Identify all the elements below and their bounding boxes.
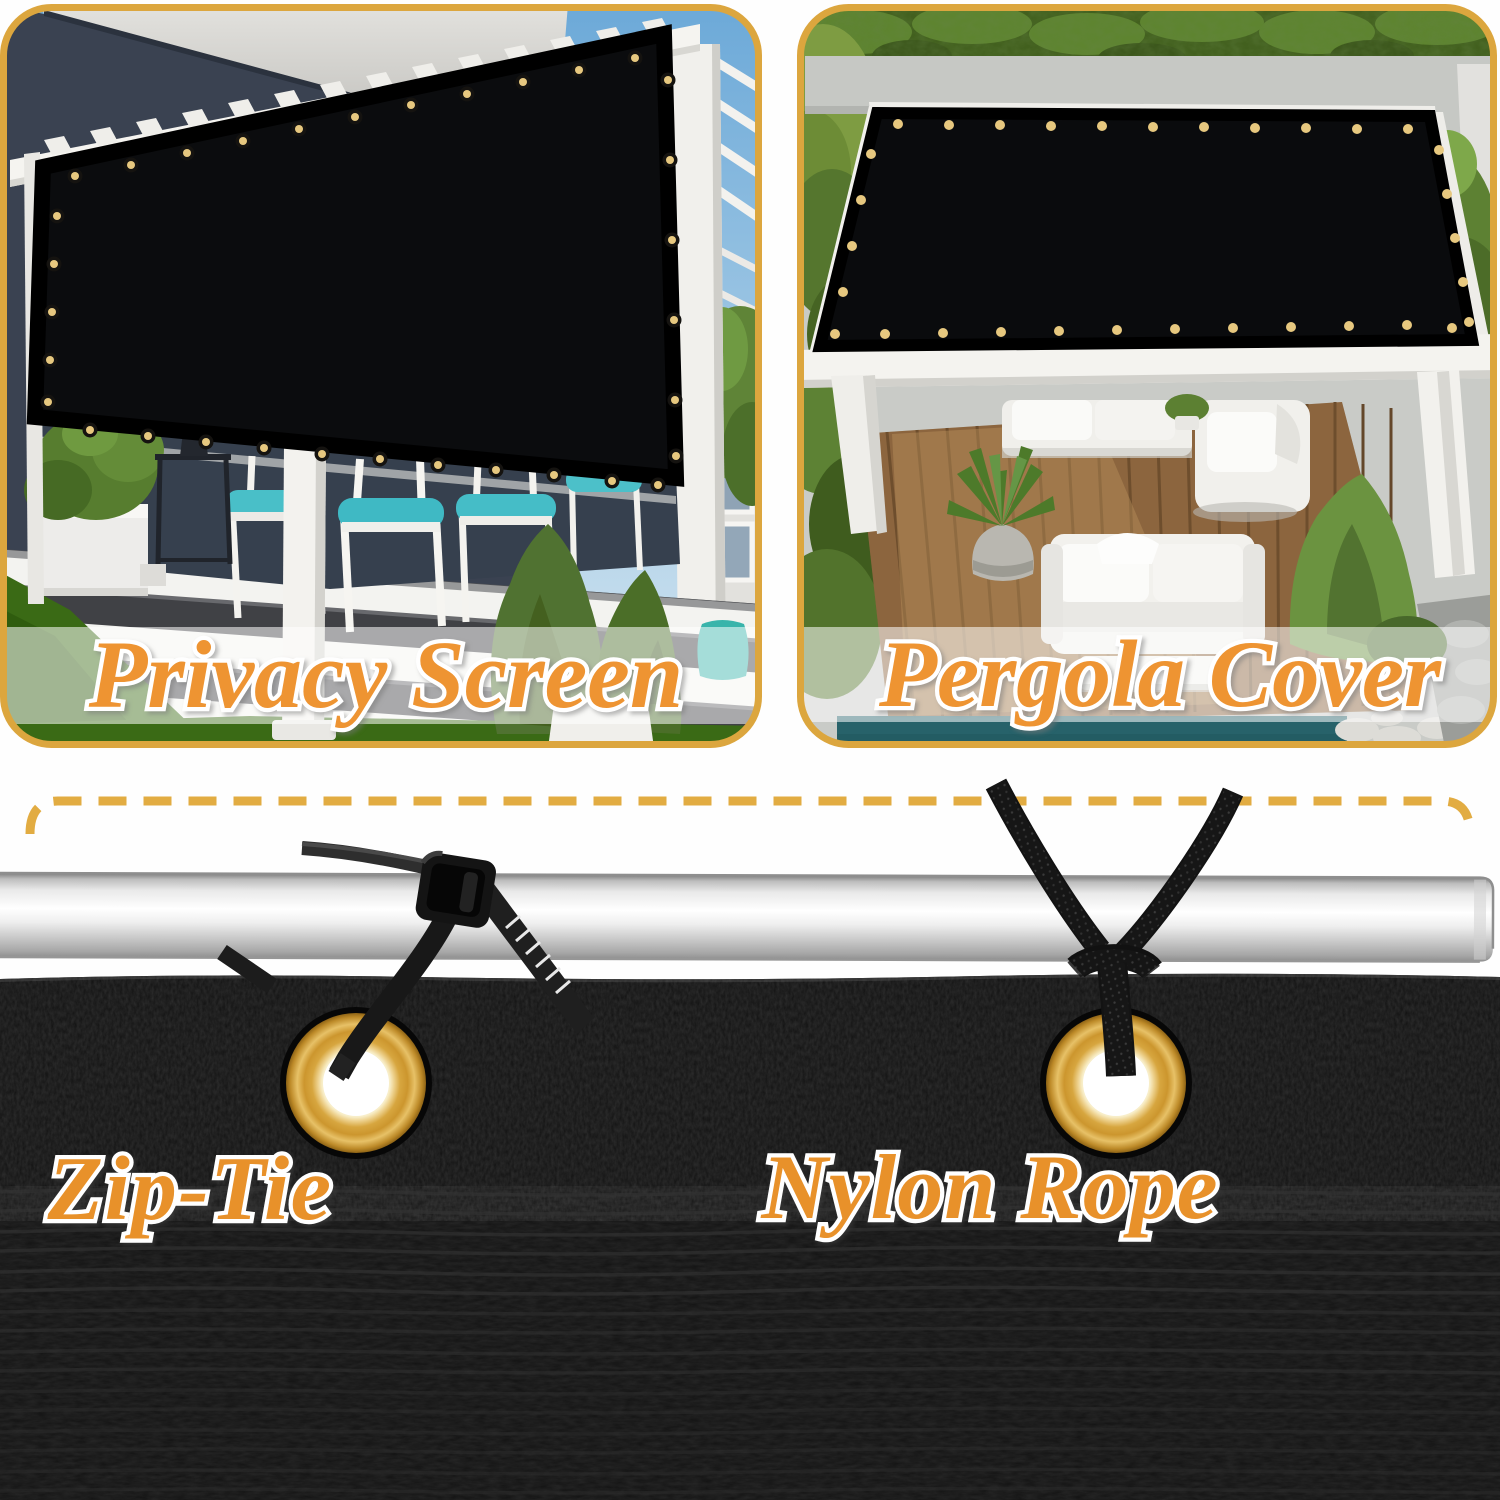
- svg-text:Privacy Screen: Privacy Screen: [88, 621, 683, 728]
- svg-text:Pergola Cover: Pergola Cover: [878, 621, 1442, 727]
- svg-text:Nylon Rope: Nylon Rope: [760, 1136, 1218, 1238]
- svg-text:Zip-Tie: Zip-Tie: [46, 1138, 332, 1239]
